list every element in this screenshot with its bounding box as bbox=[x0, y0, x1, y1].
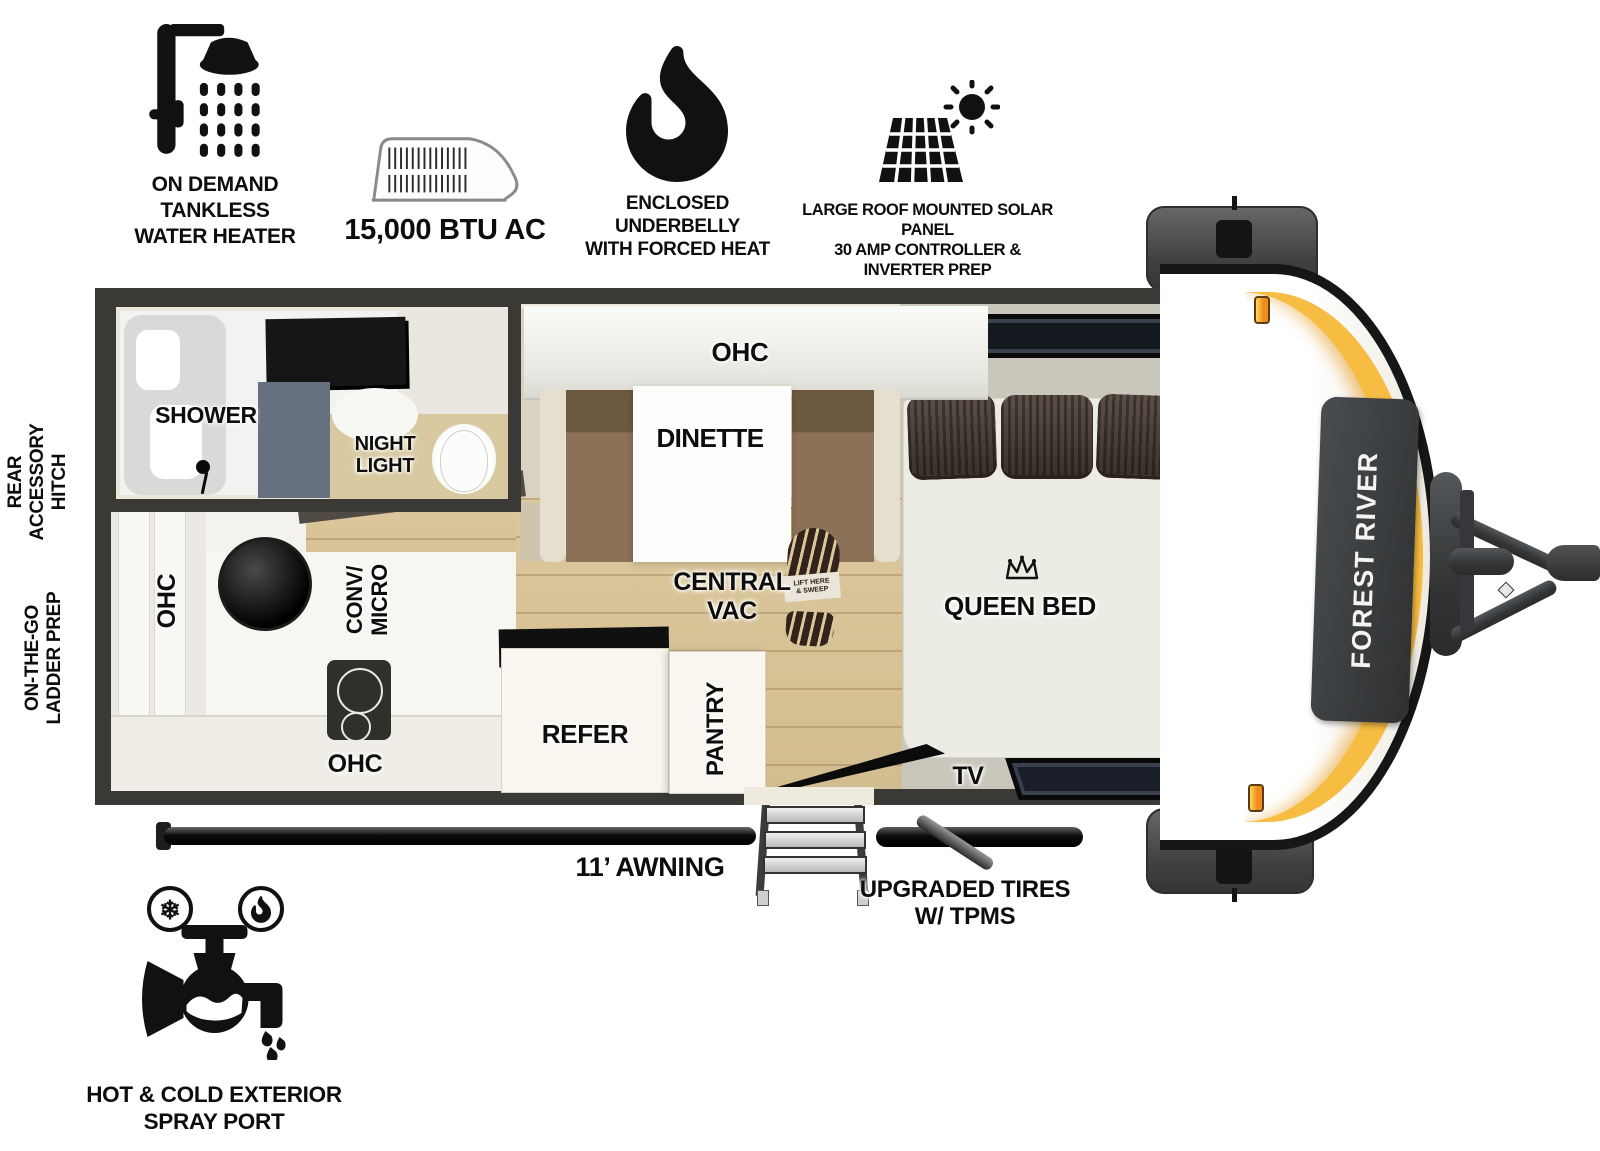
awning-label: 11’ AWNING bbox=[540, 852, 760, 882]
tires-label: UPGRADED TIRES W/ TPMS bbox=[845, 876, 1085, 930]
refer-label: REFER bbox=[515, 720, 655, 749]
bed-pillow bbox=[907, 393, 998, 480]
bath-vanity bbox=[265, 317, 406, 387]
night-light-line1: NIGHT bbox=[342, 433, 428, 455]
conv-micro-line2: MICRO bbox=[367, 545, 392, 655]
bedroom-window-bottom bbox=[1005, 758, 1179, 800]
step-tread bbox=[765, 806, 865, 824]
water-heater-line3: WATER HEATER bbox=[125, 224, 305, 250]
underbelly-line2: WITH FORCED HEAT bbox=[565, 238, 790, 261]
bedroom-window-top bbox=[968, 314, 1182, 358]
shower-head-icon bbox=[148, 22, 272, 164]
shower-glass-highlight bbox=[136, 330, 180, 390]
tv-label: TV bbox=[944, 762, 992, 790]
boot-heel bbox=[785, 611, 835, 647]
solar-label: LARGE ROOF MOUNTED SOLAR PANEL 30 AMP CO… bbox=[795, 200, 1060, 280]
water-heater-line1: ON DEMAND bbox=[125, 172, 305, 198]
burner-large bbox=[337, 668, 383, 714]
rear-hitch-line3: HITCH bbox=[49, 392, 71, 572]
rear-accessory-hitch-label: REAR ACCESSORY HITCH bbox=[5, 392, 71, 572]
ohc-top-label: OHC bbox=[690, 338, 790, 367]
box-latch bbox=[1216, 846, 1252, 884]
tires-line2: W/ TPMS bbox=[845, 903, 1085, 930]
ladder-prep-label: ON-THE-GO LADDER PREP bbox=[22, 568, 66, 748]
forest-river-brand-label: FOREST RIVER bbox=[1346, 451, 1385, 669]
spray-port-label: HOT & COLD EXTERIOR SPRAY PORT bbox=[85, 1081, 343, 1135]
rooftop-ac-icon bbox=[360, 128, 526, 208]
central-vac-label: CENTRAL VAC bbox=[672, 568, 792, 626]
step-tread bbox=[763, 856, 867, 874]
conv-micro-line1: CONV/ bbox=[342, 545, 367, 655]
spray-line1: HOT & COLD EXTERIOR bbox=[85, 1081, 343, 1108]
water-heater-label: ON DEMAND TANKLESS WATER HEATER bbox=[125, 172, 305, 250]
bed-pillow bbox=[1001, 395, 1093, 479]
water-heater-line2: TANKLESS bbox=[125, 198, 305, 224]
dinette-label: DINETTE bbox=[645, 424, 775, 453]
tires-line1: UPGRADED TIRES bbox=[845, 876, 1085, 903]
marker-light-top bbox=[1254, 296, 1270, 324]
spray-line2: SPRAY PORT bbox=[85, 1108, 343, 1135]
pantry-label: PANTRY bbox=[696, 654, 736, 804]
flame-icon bbox=[626, 40, 728, 188]
box-latch bbox=[1216, 220, 1252, 258]
ac-label: 15,000 BTU AC bbox=[330, 214, 560, 246]
box-antenna bbox=[1232, 888, 1237, 902]
ladder-line1: ON-THE-GO bbox=[22, 568, 44, 748]
ohc-bottom-label: OHC bbox=[305, 750, 405, 778]
marker-light-bottom bbox=[1248, 784, 1264, 812]
entry-door-opening bbox=[744, 787, 874, 805]
forest-river-badge: FOREST RIVER bbox=[1310, 396, 1419, 723]
shower-glass-door bbox=[258, 382, 330, 498]
tongue-jack-tube bbox=[1448, 548, 1514, 575]
burner-small bbox=[341, 712, 371, 742]
floorplan-diagram: ON DEMAND TANKLESS WATER HEATER 15,000 B… bbox=[0, 0, 1600, 1151]
night-light-label: NIGHT LIGHT bbox=[342, 433, 428, 477]
box-antenna bbox=[1232, 196, 1237, 210]
hitch-coupler bbox=[1546, 545, 1600, 581]
awning-roller-bar-right bbox=[876, 827, 1083, 847]
toilet bbox=[440, 430, 488, 492]
conv-micro-label: CONV/ MICRO bbox=[342, 545, 394, 655]
solar-line1: LARGE ROOF MOUNTED SOLAR PANEL bbox=[795, 200, 1060, 240]
solar-panel-icon bbox=[858, 80, 1000, 192]
central-vac-line1: CENTRAL bbox=[672, 568, 792, 597]
shower-label: SHOWER bbox=[140, 403, 272, 429]
dinette-table bbox=[633, 386, 791, 562]
awning-roller-bar bbox=[164, 827, 756, 845]
step-tread bbox=[764, 831, 866, 849]
safety-chain-link bbox=[1498, 582, 1515, 599]
queen-bed-label: QUEEN BED bbox=[930, 592, 1110, 621]
dinette-bench-left bbox=[566, 390, 634, 562]
dinette-backrest-right bbox=[874, 390, 900, 562]
hot-cold-spray-port-icon bbox=[138, 925, 296, 1060]
underbelly-line1: ENCLOSED UNDERBELLY bbox=[565, 192, 790, 238]
cooktop bbox=[327, 660, 391, 740]
rear-hitch-line2: ACCESSORY bbox=[27, 392, 49, 572]
ohc-left-label: OHC bbox=[147, 541, 187, 661]
dinette-backrest-left bbox=[540, 390, 566, 562]
step-foot bbox=[757, 890, 769, 906]
central-vac-line2: VAC bbox=[672, 597, 792, 626]
bath-counter bbox=[398, 307, 508, 419]
night-light-line2: LIGHT bbox=[342, 455, 428, 477]
ladder-line2: LADDER PREP bbox=[44, 568, 66, 748]
rear-hitch-line1: REAR bbox=[5, 392, 27, 572]
kitchen-sink bbox=[218, 537, 312, 631]
solar-line2: 30 AMP CONTROLLER & INVERTER PREP bbox=[795, 240, 1060, 280]
crown-icon bbox=[1000, 554, 1044, 584]
underbelly-label: ENCLOSED UNDERBELLY WITH FORCED HEAT bbox=[565, 192, 790, 261]
